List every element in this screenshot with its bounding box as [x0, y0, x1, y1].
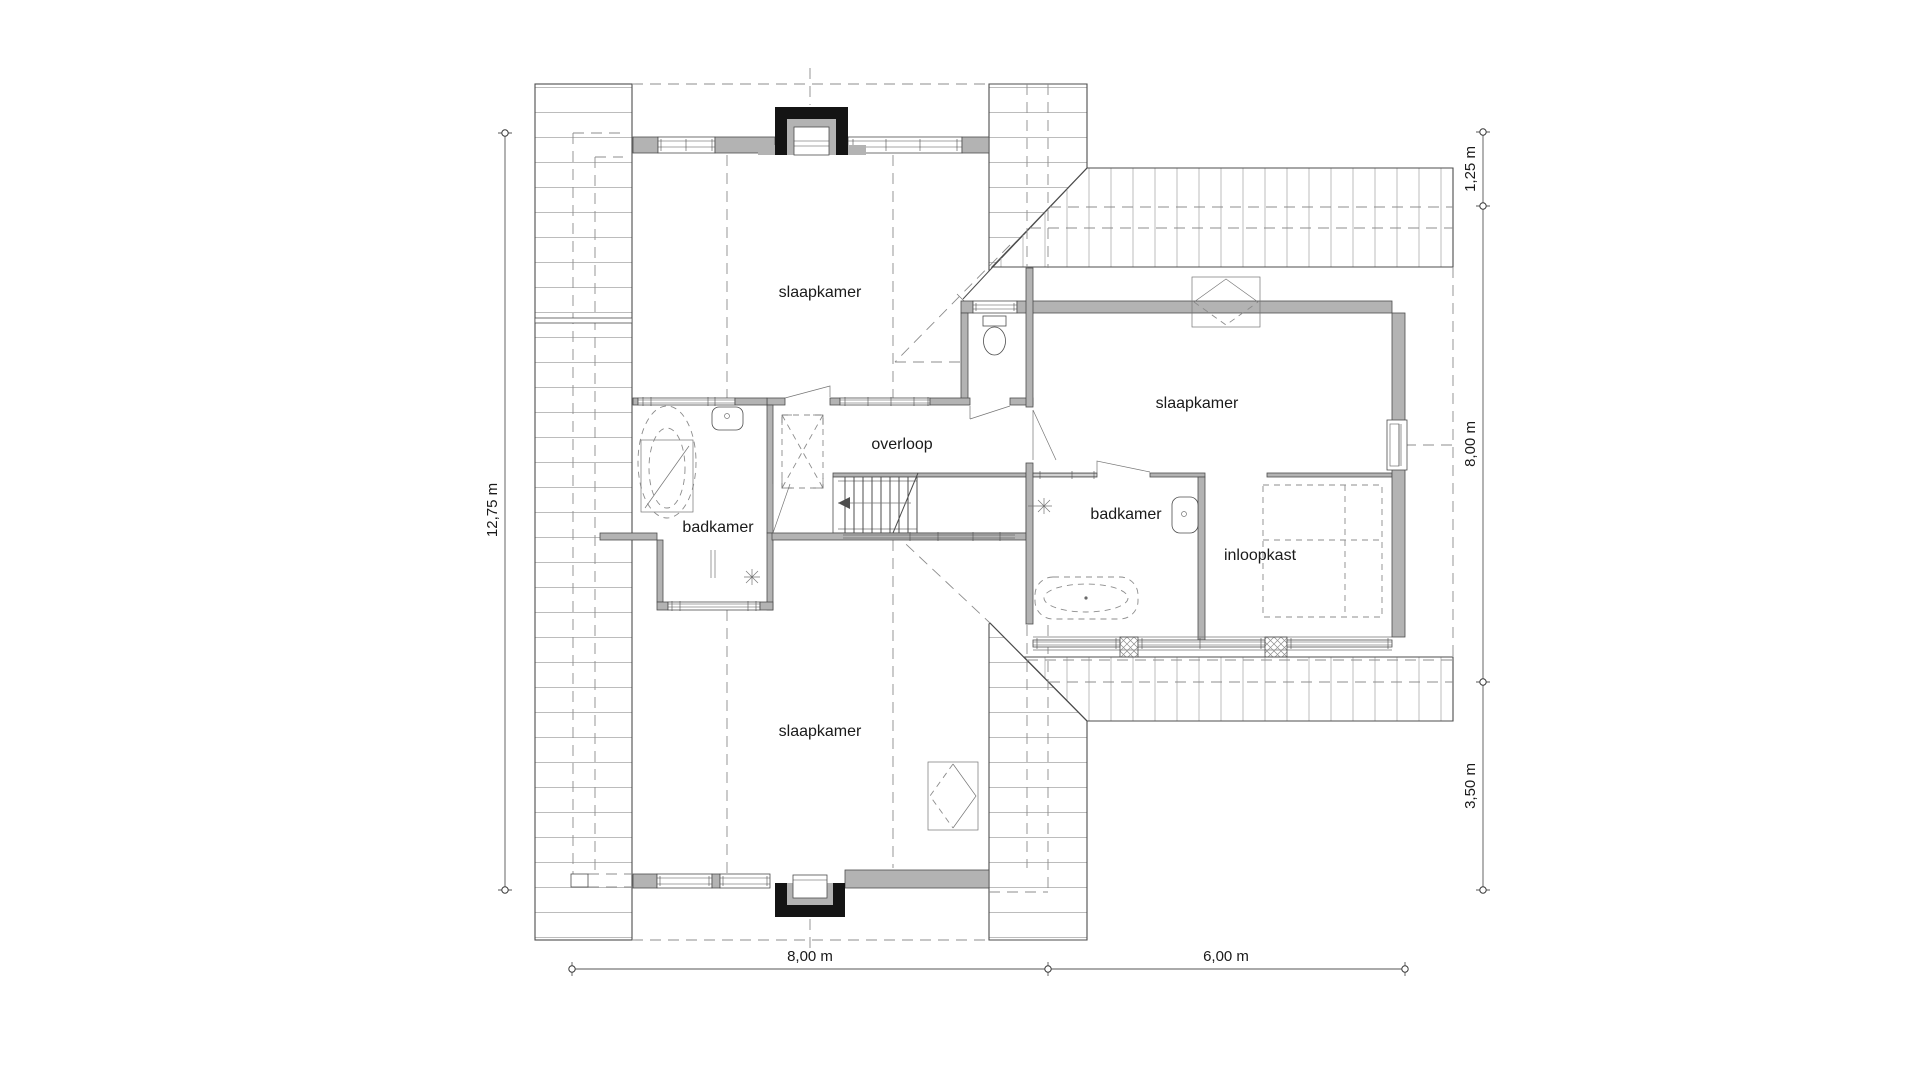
flue-box: [571, 874, 588, 887]
label-bedroom-right: slaapkamer: [1156, 395, 1239, 412]
dimension-right-middle: 8,00 m: [1462, 421, 1479, 467]
wall-pier: [1120, 637, 1138, 657]
window: [658, 137, 715, 153]
interior-glazing: [1033, 473, 1097, 477]
toilet: [983, 316, 1006, 355]
dimension-bottom-extension: 6,00 m: [1203, 948, 1249, 965]
vent-point-icon: [744, 569, 760, 585]
label-landing: overloop: [871, 436, 932, 453]
knee-wall: [535, 318, 632, 323]
roof-plane-left: [535, 84, 632, 940]
dimension-right-top: 1,25 m: [1462, 146, 1479, 192]
wc-west-wall: [961, 313, 968, 399]
wall-pier: [1265, 637, 1287, 657]
washbasin-left: [712, 407, 743, 430]
wall-pier: [962, 137, 989, 153]
label-walk-in-closet: inloopkast: [1224, 547, 1297, 564]
window: [1138, 640, 1265, 647]
window: [973, 301, 1017, 313]
window: [668, 602, 760, 610]
dimension-bottom-main: 8,00 m: [787, 948, 833, 965]
interior-glazing: [840, 398, 930, 405]
dimension-left-total: 12,75 m: [484, 483, 501, 537]
label-bedroom-top: slaapkamer: [779, 284, 862, 301]
label-bedroom-bottom: slaapkamer: [779, 723, 862, 740]
window-east: [1387, 420, 1407, 470]
wall-pier: [633, 137, 658, 153]
wall-pier: [712, 874, 720, 888]
washbasin-right: [1172, 497, 1198, 533]
floor-plan-drawing: 12,75 m 1,25 m 8,00 m 3,50 m 8,00 m 6,00…: [0, 0, 1920, 1080]
window: [1033, 640, 1120, 647]
interior-glazing: [638, 398, 735, 405]
window: [657, 874, 712, 888]
floor-plan-canvas: 12,75 m 1,25 m 8,00 m 3,50 m 8,00 m 6,00…: [0, 0, 1920, 1080]
extension-roof-bottom: [1024, 657, 1453, 721]
label-bathroom-left: badkamer: [682, 519, 754, 536]
landing-west-wall: [767, 405, 773, 533]
window: [1287, 640, 1392, 647]
window: [720, 874, 770, 888]
bathroom-east-wall: [1198, 477, 1205, 640]
label-bathroom-right: badkamer: [1090, 506, 1162, 523]
wall-pier: [633, 874, 657, 888]
wall-band: [845, 870, 989, 888]
dimension-right-bottom: 3,50 m: [1462, 763, 1479, 809]
